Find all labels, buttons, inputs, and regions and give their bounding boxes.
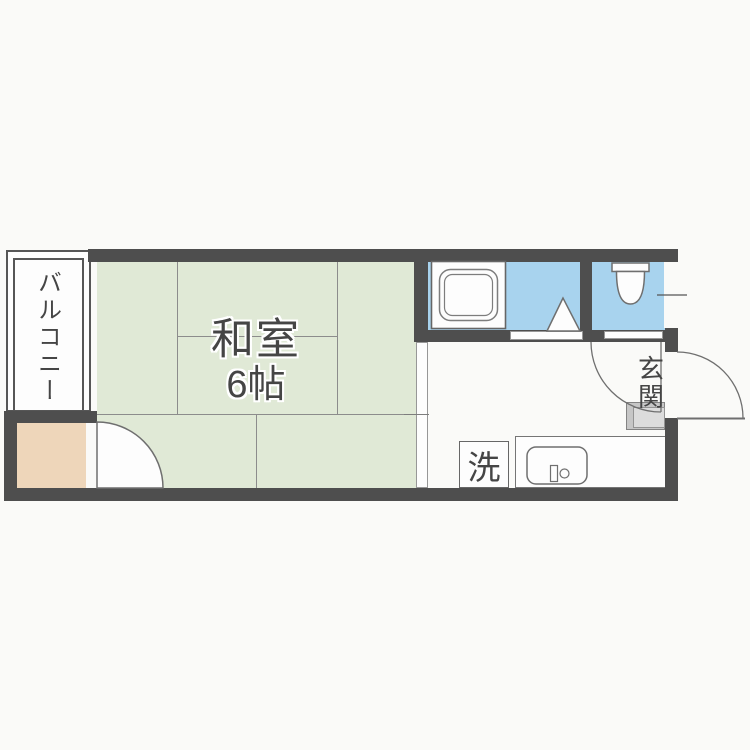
washing-machine-label: 洗 — [468, 441, 501, 489]
entrance-label: 玄関 — [635, 351, 665, 415]
tatami-room-label: 和室 6帖 — [146, 316, 366, 407]
floorplan-canvas: 和室 6帖 バルコニー 玄関 洗 — [0, 0, 750, 750]
bathtub-icon — [432, 262, 506, 329]
washing-machine-box: 洗 — [459, 441, 509, 488]
room-size: 6帖 — [146, 364, 366, 407]
toilet-icon — [612, 263, 649, 304]
folding-door-icon — [547, 298, 580, 331]
kitchen-sink-icon — [527, 447, 587, 484]
room-name: 和室 — [146, 316, 366, 364]
door-swing-arc-icon — [97, 422, 163, 488]
door-swing-arc-icon — [677, 352, 745, 419]
balcony-label: バルコニー — [28, 262, 66, 412]
